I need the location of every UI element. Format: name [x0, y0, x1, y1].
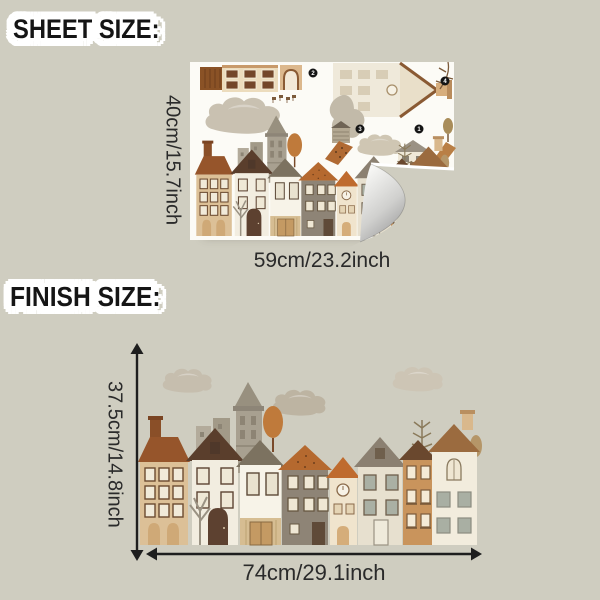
arrow-head-right-icon [471, 548, 482, 561]
cloud-left [163, 369, 212, 393]
finish-size-title: FINISH SIZE: [10, 281, 161, 313]
marker-dot-1: 2 [309, 69, 318, 78]
marker-dot-3: 3 [356, 125, 365, 134]
arrow-head-down-icon [131, 550, 144, 561]
finish-height-label: 37.5cm/14.8inch [99, 356, 129, 552]
cloud-right [393, 367, 443, 391]
sheet-width-label: 59cm/23.2inch [190, 249, 454, 273]
product-dimension-image: SHEET SIZE: [0, 0, 600, 600]
arrow-head-left-icon [146, 548, 157, 561]
cloud-middle [273, 390, 326, 416]
sheet-height-label: 40cm/15.7inch [157, 80, 187, 240]
sheet-size-title: SHEET SIZE: [13, 14, 160, 45]
door-piece [200, 67, 224, 90]
arch-piece [280, 65, 302, 90]
facade-strip-piece [222, 65, 278, 92]
finish-height-arrow [126, 343, 148, 561]
marker-dot-2: 4 [441, 77, 450, 86]
finish-scene [133, 340, 497, 550]
arrow-head-up-icon [131, 343, 144, 354]
sticker-sheet-graphic: 2 4 3 1 [190, 62, 460, 248]
finish-width-label: 74cm/29.1inch [146, 560, 482, 586]
marker-dot-4: 1 [415, 125, 424, 134]
